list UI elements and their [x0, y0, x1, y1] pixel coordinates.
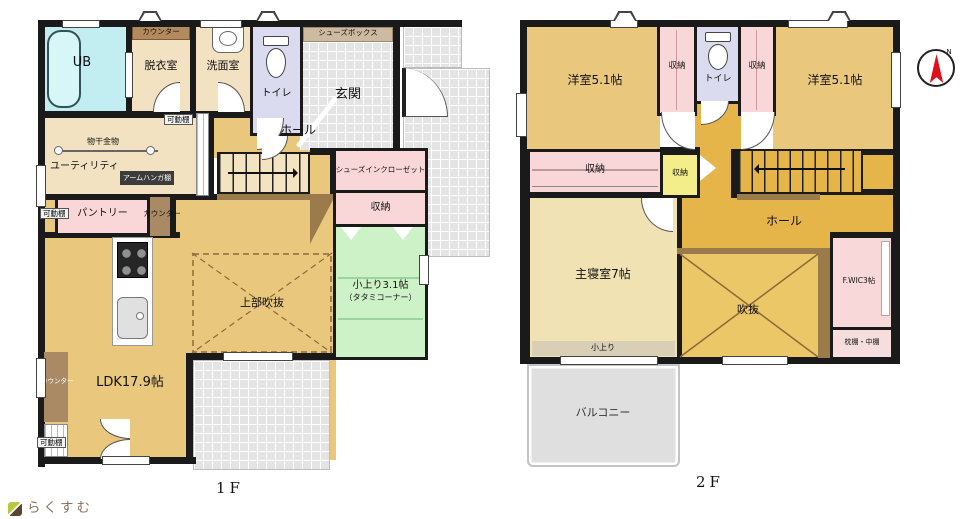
window-bedroom-a-top: [610, 20, 638, 28]
brand-house-icon: [8, 502, 22, 516]
bedroom-a: [527, 27, 660, 151]
bedroom-a-label: 洋室5.1帖: [540, 74, 650, 88]
closet-a-label: 収納: [657, 62, 697, 72]
closet-c-label: 収納: [560, 164, 630, 176]
window-void-south2: [722, 356, 788, 365]
vent-icon-2f-b: [827, 11, 851, 21]
master-bedroom-label: 主寝室7帖: [548, 268, 658, 282]
brand-text: らくすむ: [27, 501, 117, 517]
bedroom-b: [773, 27, 894, 151]
compass: N: [917, 49, 955, 87]
closet-d-label: 収納: [660, 168, 700, 177]
floor2-title: 2F: [680, 474, 740, 491]
hall-2f-label: ホール: [752, 215, 816, 229]
window-bedroom-a-left: [516, 93, 527, 137]
floorplan-page: シューズボックス 玄関 UB カウンター 脱衣室 洗面室: [0, 0, 960, 519]
window-bedroom-b-top: [788, 20, 848, 28]
compass-n-label: N: [944, 48, 954, 56]
fwic-label: F.WIC3帖: [828, 277, 890, 286]
toilet-2f-label: トイレ: [694, 74, 742, 84]
bedroom-b-label: 洋室5.1帖: [780, 74, 890, 88]
makura-shelf-label: 枕棚・中棚: [830, 338, 894, 346]
balcony-label: バルコニー: [558, 407, 648, 420]
stairs-2f-arrow: [757, 168, 845, 170]
closet-b-label: 収納: [738, 62, 776, 72]
compass-needle-icon: [926, 54, 947, 83]
window-master-balcony: [560, 356, 658, 365]
bedroom-b-door-arc: [741, 112, 775, 150]
window-bedroom-b-right: [891, 52, 901, 108]
toilet-icon-2f: [705, 32, 731, 70]
stairs-2f-arrowhead: [749, 164, 759, 174]
closet-d-door-mark: [700, 155, 716, 181]
vent-icon-2f-a: [613, 11, 637, 21]
bedroom-a-door-arc: [661, 112, 695, 150]
void-label: 吹抜: [718, 304, 778, 317]
stairs-2f-beam: [737, 194, 820, 200]
wall2-left: [520, 20, 527, 364]
master-step-label: 小上り: [570, 343, 636, 352]
closet-c-pole-line: [532, 186, 658, 187]
floor2-plan: 収納 トイレ 収納 洋室5.1帖 洋室5.1帖 収納 収納 ホール 主寝室7帖 …: [0, 0, 960, 519]
brand-logo: らくすむ: [8, 500, 168, 518]
